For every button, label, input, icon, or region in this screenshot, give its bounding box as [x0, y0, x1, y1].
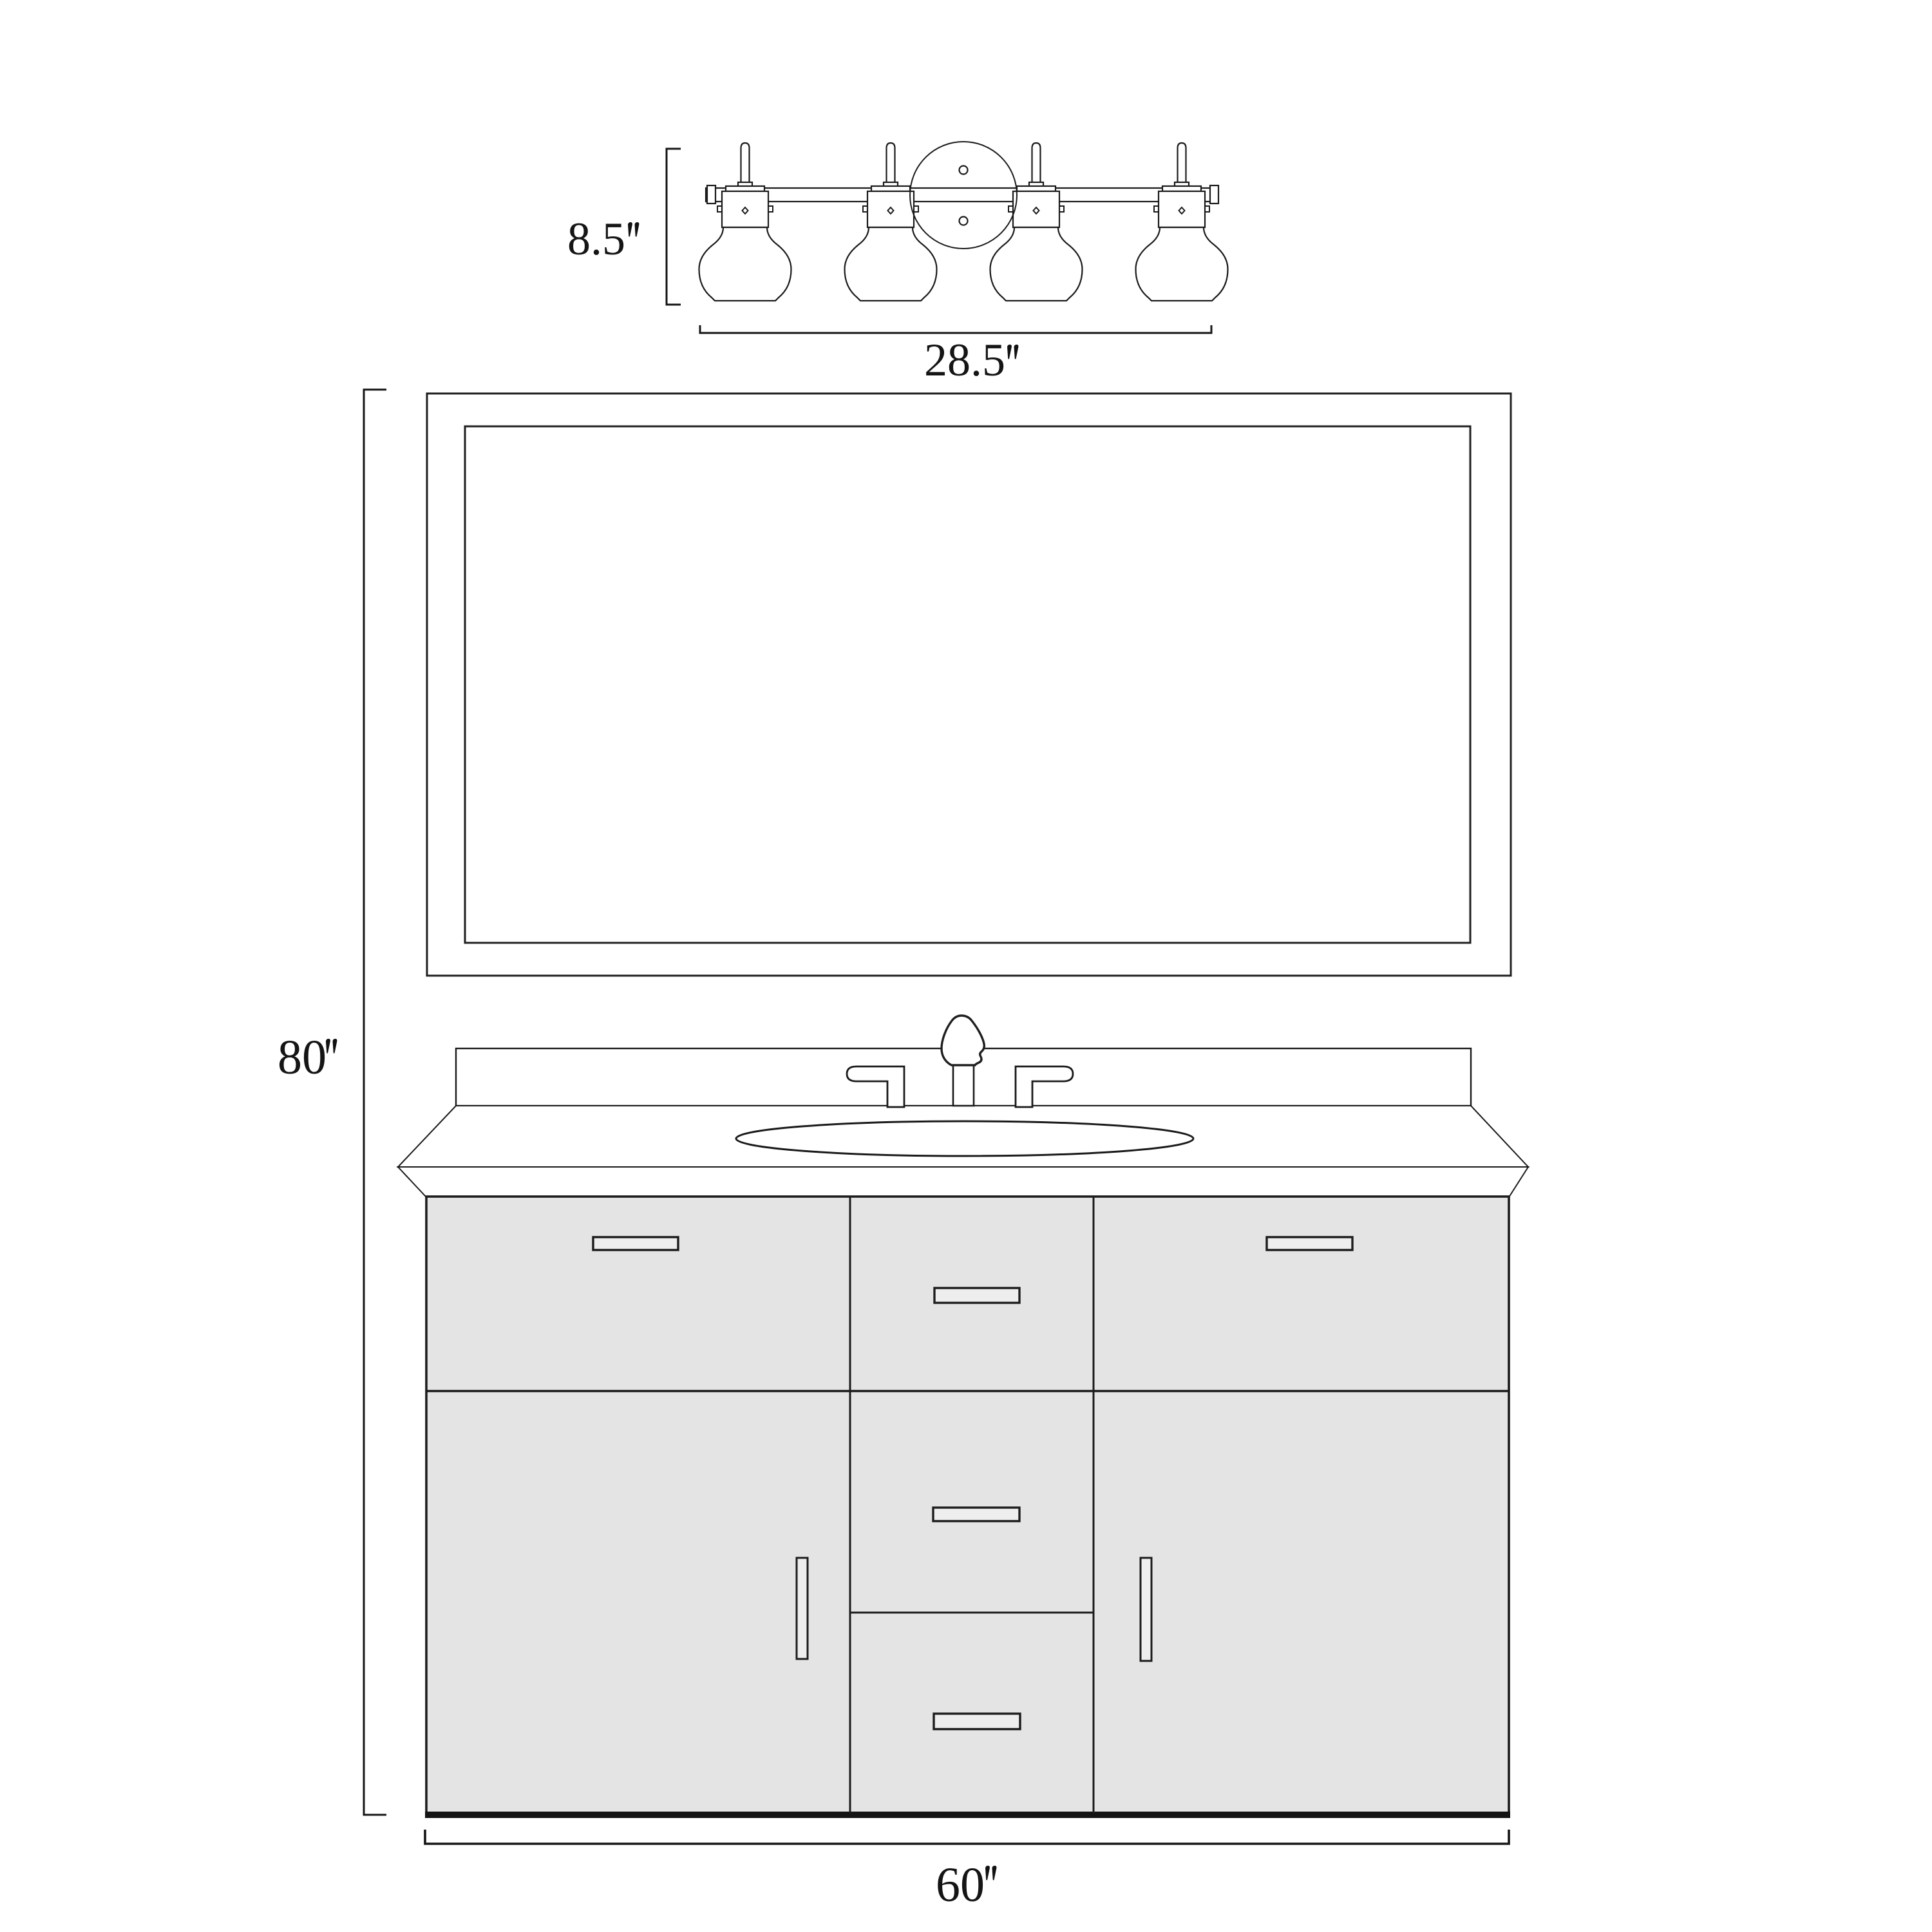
svg-text:28.5: 28.5 — [924, 334, 1005, 386]
svg-text:8.5: 8.5 — [567, 213, 625, 265]
svg-text:60: 60 — [936, 1858, 985, 1912]
svg-text:80: 80 — [278, 1030, 327, 1084]
